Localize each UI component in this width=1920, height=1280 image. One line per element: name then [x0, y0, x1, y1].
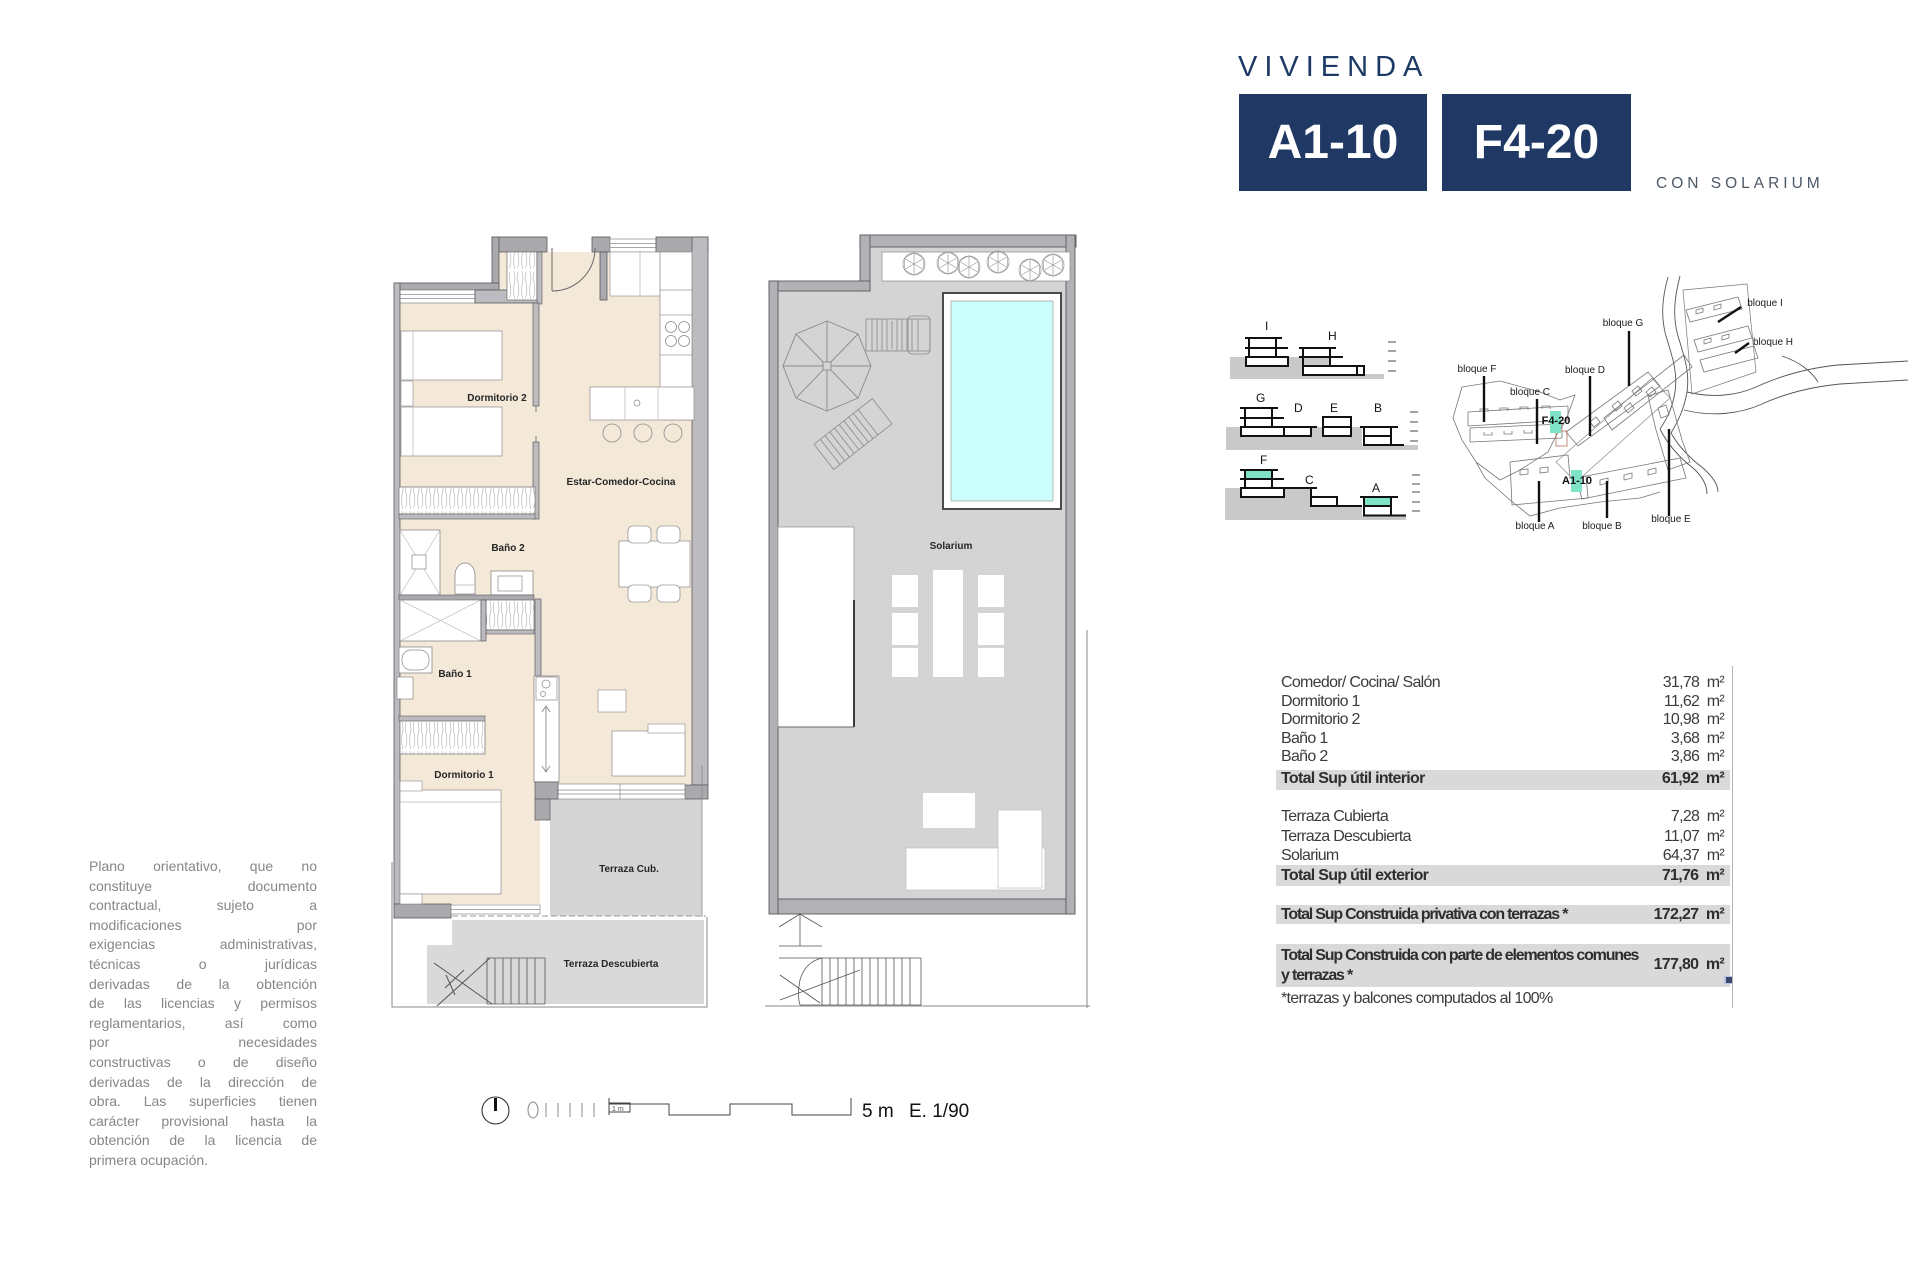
svg-text:bloque A: bloque A	[1516, 521, 1555, 532]
svg-text:bloque C: bloque C	[1510, 387, 1550, 398]
svg-text:G: G	[1256, 391, 1265, 405]
svg-text:Terraza Cub.: Terraza Cub.	[599, 864, 659, 875]
svg-text:bloque E: bloque E	[1651, 514, 1691, 525]
svg-text:1 m: 1 m	[612, 1106, 624, 1113]
svg-text:B: B	[1374, 401, 1382, 415]
svg-text:E. 1/90: E. 1/90	[909, 1101, 969, 1122]
svg-text:Estar-Comedor-Cocina: Estar-Comedor-Cocina	[567, 477, 676, 488]
svg-text:Dormitorio 1: Dormitorio 1	[434, 770, 494, 781]
svg-text:D: D	[1294, 401, 1303, 415]
svg-text:A1-10: A1-10	[1562, 475, 1592, 487]
svg-text:Solarium: Solarium	[930, 541, 973, 552]
svg-text:I: I	[1265, 319, 1268, 333]
svg-text:Terraza Descubierta: Terraza Descubierta	[564, 959, 659, 970]
svg-text:bloque B: bloque B	[1582, 521, 1622, 532]
svg-text:H: H	[1328, 329, 1337, 343]
svg-text:A: A	[1372, 481, 1380, 495]
svg-text:bloque D: bloque D	[1565, 365, 1605, 376]
svg-text:bloque F: bloque F	[1458, 364, 1497, 375]
svg-text:F4-20: F4-20	[1542, 415, 1571, 427]
svg-text:E: E	[1330, 401, 1338, 415]
svg-text:Dormitorio 2: Dormitorio 2	[467, 393, 527, 404]
svg-text:F: F	[1260, 453, 1267, 467]
svg-text:5 m: 5 m	[862, 1101, 894, 1122]
svg-text:bloque G: bloque G	[1603, 318, 1644, 329]
svg-text:Baño 1: Baño 1	[438, 669, 472, 680]
svg-text:Baño 2: Baño 2	[491, 543, 525, 554]
svg-text:C: C	[1305, 473, 1314, 487]
svg-text:bloque I: bloque I	[1747, 298, 1783, 309]
svg-text:bloque H: bloque H	[1753, 337, 1793, 348]
